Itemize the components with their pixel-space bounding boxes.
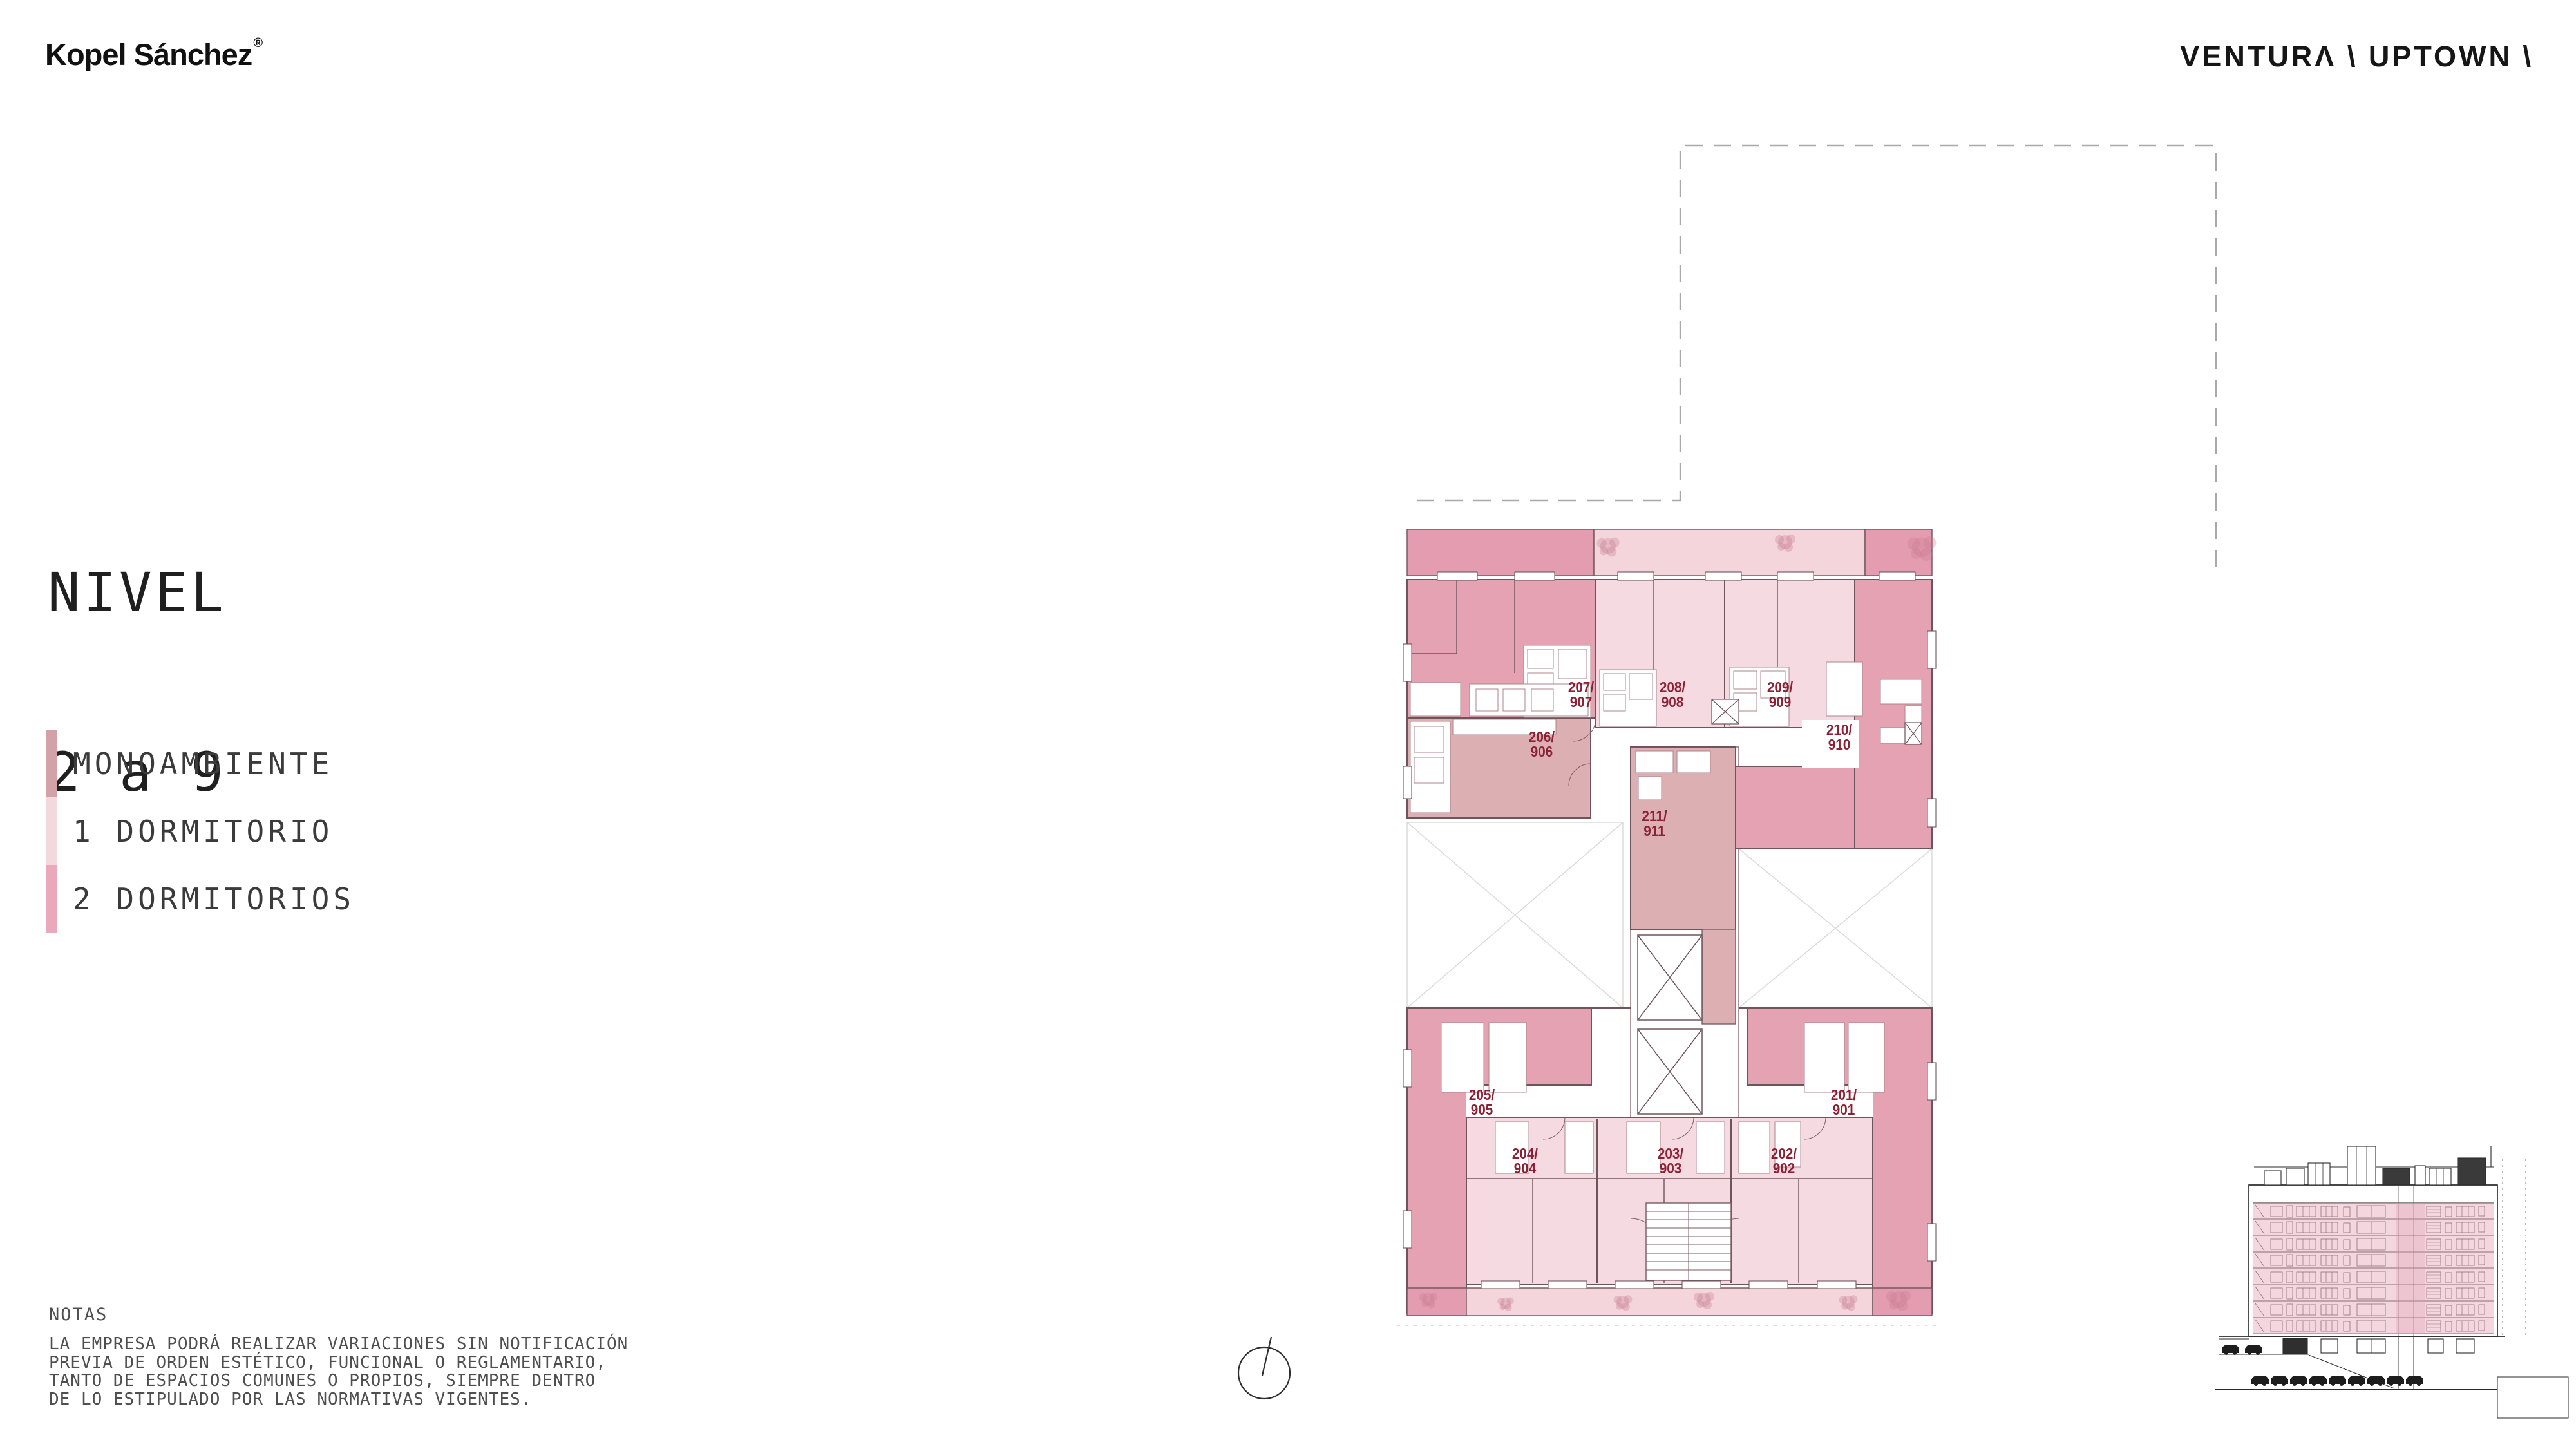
unit-label-209-909: 209/909 <box>1767 680 1793 709</box>
legend-swatch-1-dormitorio <box>46 797 57 865</box>
unit-label-211-911: 211/911 <box>1642 809 1667 838</box>
north-compass-icon <box>1238 1337 1290 1399</box>
project-brand: VENTURΛ \ UPTOWN \ <box>2180 40 2533 73</box>
unit-label-206-906: 206/906 <box>1529 730 1555 759</box>
logo: Kopel Sánchez® <box>45 36 262 72</box>
registered-mark-icon: ® <box>253 36 262 50</box>
balcony-strip-top <box>1407 529 1932 576</box>
legend-label: 1 DORMITORIO <box>57 797 333 865</box>
courtyard-right <box>1739 849 1932 1008</box>
notes-line: DE LO ESTIPULADO POR LAS NORMATIVAS VIGE… <box>49 1390 628 1409</box>
section-level-highlight <box>2253 1203 2494 1334</box>
legend-swatch-2-dormitorios <box>46 865 57 933</box>
notes-block: NOTAS LA EMPRESA PODRÁ REALIZAR VARIACIO… <box>49 1305 628 1408</box>
unit-type-legend: MONOAMBIENTE 1 DORMITORIO 2 DORMITORIOS <box>46 730 355 933</box>
legend-item-1-dormitorio: 1 DORMITORIO <box>46 797 355 865</box>
unit-area-211-tail <box>1702 929 1736 1024</box>
lot-boundary-dashed-line <box>1417 146 2216 567</box>
unit-label-203-903: 203/903 <box>1658 1146 1683 1175</box>
legend-swatch-monoambiente <box>46 730 57 797</box>
page-title-line1: NIVEL <box>48 563 227 623</box>
notes-line: PREVIA DE ORDEN ESTÉTICO, FUNCIONAL O RE… <box>49 1354 628 1372</box>
unit-label-204-904: 204/904 <box>1512 1146 1538 1175</box>
notes-line: TANTO DE ESPACIOS COMUNES O PROPIOS, SIE… <box>49 1372 628 1390</box>
plan-sheet-page: Kopel Sánchez® VENTURΛ \ UPTOWN \ NIVEL … <box>0 0 2576 1449</box>
legend-label: 2 DORMITORIOS <box>57 865 355 933</box>
building-section <box>2215 1146 2568 1418</box>
unit-label-205-905: 205/905 <box>1469 1088 1495 1117</box>
unit-label-201-901: 201/901 <box>1831 1088 1857 1117</box>
unit-area-210-b <box>1736 766 1855 849</box>
notes-line: LA EMPRESA PODRÁ REALIZAR VARIACIONES SI… <box>49 1335 628 1354</box>
unit-label-208-908: 208/908 <box>1660 680 1685 709</box>
logo-text: Kopel Sánchez <box>45 37 252 71</box>
notes-heading: NOTAS <box>49 1305 628 1325</box>
legend-item-monoambiente: MONOAMBIENTE <box>46 730 355 797</box>
unit-label-210-910: 210/910 <box>1826 723 1852 752</box>
legend-label: MONOAMBIENTE <box>57 730 333 797</box>
unit-label-207-907: 207/907 <box>1568 680 1594 709</box>
legend-item-2-dormitorios: 2 DORMITORIOS <box>46 865 355 933</box>
drawing-layer <box>0 0 2576 1449</box>
stairs <box>1646 1203 1731 1280</box>
courtyard-left <box>1407 822 1623 1008</box>
unit-label-202-902: 202/902 <box>1771 1146 1797 1175</box>
